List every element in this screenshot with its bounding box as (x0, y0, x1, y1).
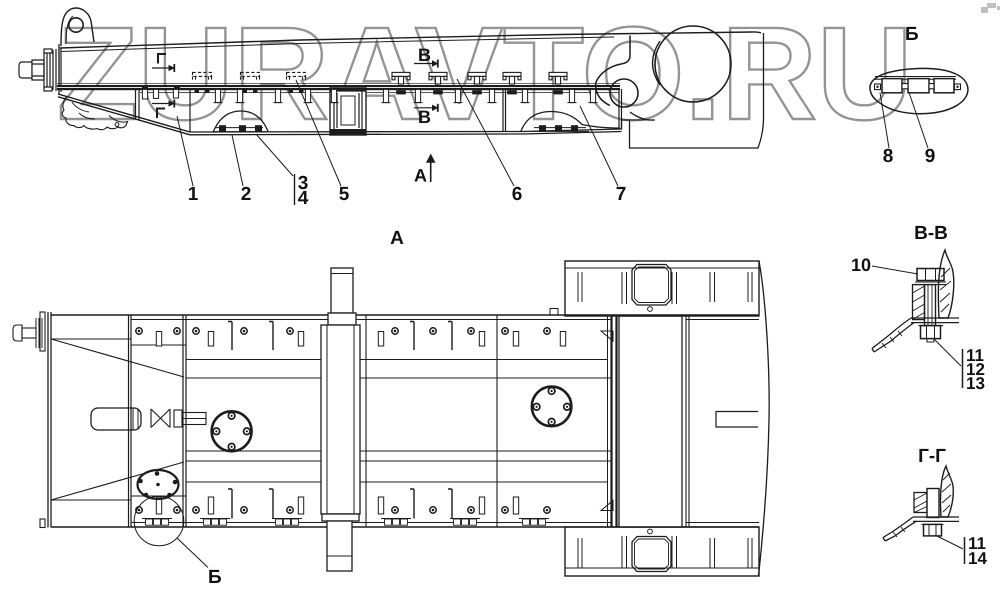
svg-text:В: В (418, 107, 431, 127)
svg-text:А: А (414, 166, 427, 186)
svg-text:7: 7 (616, 184, 627, 205)
svg-text:14: 14 (968, 549, 987, 568)
svg-text:9: 9 (925, 146, 936, 167)
svg-text:6: 6 (512, 184, 523, 205)
svg-text:А: А (390, 228, 404, 249)
svg-text:10: 10 (851, 255, 871, 275)
svg-text:2: 2 (241, 184, 252, 205)
svg-text:5: 5 (339, 184, 350, 205)
svg-text:13: 13 (966, 374, 985, 393)
svg-text:1: 1 (188, 184, 199, 205)
svg-text:Г-Г: Г-Г (918, 446, 946, 467)
svg-text:Б: Б (208, 567, 222, 588)
svg-text:Б: Б (905, 24, 919, 45)
svg-text:В-В: В-В (914, 223, 948, 244)
svg-text:8: 8 (883, 146, 894, 167)
svg-text:4: 4 (298, 188, 309, 209)
svg-text:В: В (418, 45, 431, 65)
